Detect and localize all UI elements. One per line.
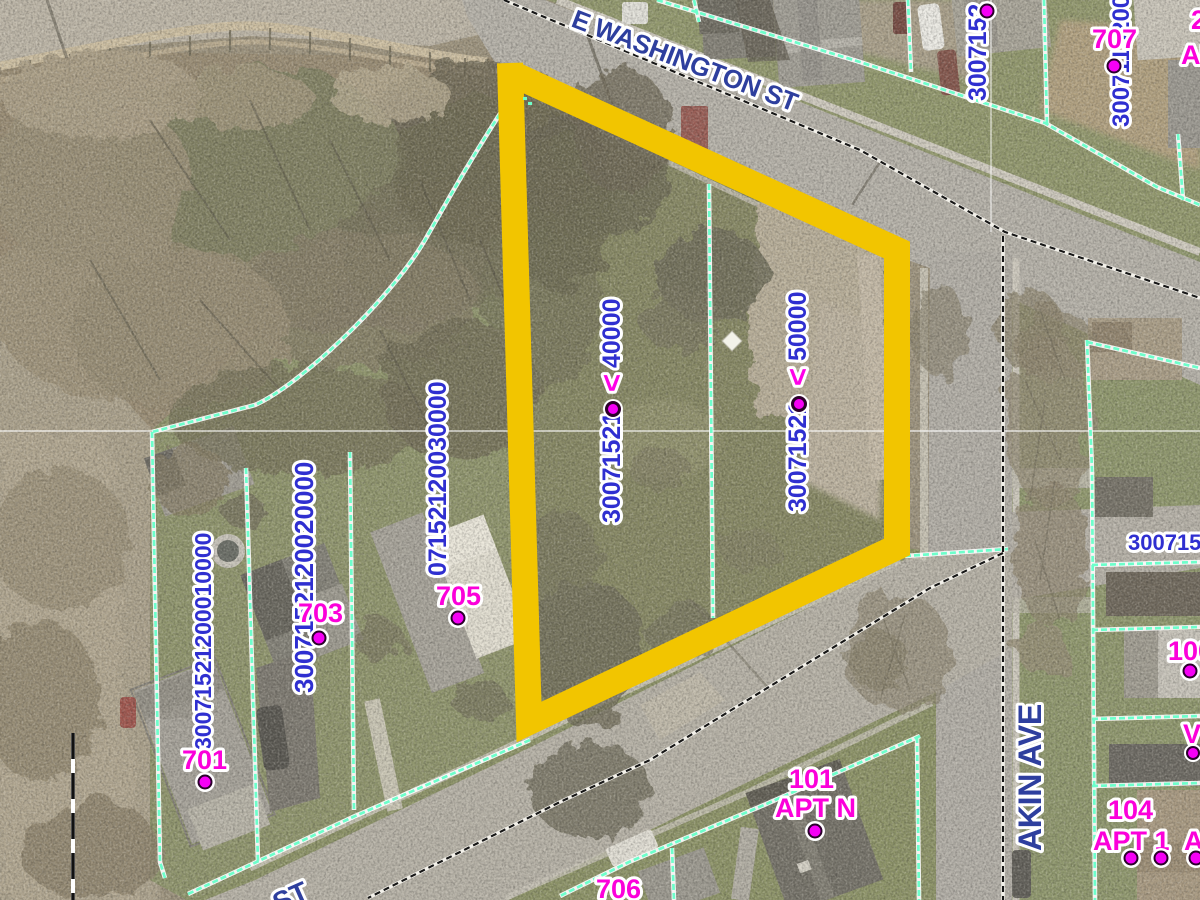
svg-text:101: 101 <box>789 764 834 794</box>
svg-text:706: 706 <box>596 874 641 900</box>
svg-text:<: < <box>780 368 815 386</box>
svg-text:50000: 50000 <box>784 291 812 361</box>
svg-text:40000: 40000 <box>598 298 626 368</box>
svg-text:AP: AP <box>1181 40 1200 70</box>
svg-text:300715: 300715 <box>1128 530 1200 555</box>
svg-text:30071521200010000: 30071521200010000 <box>190 533 216 750</box>
svg-text:703: 703 <box>298 598 343 628</box>
svg-text:2: 2 <box>1191 5 1200 35</box>
svg-text:707: 707 <box>1092 24 1137 54</box>
svg-text:705: 705 <box>436 581 481 611</box>
svg-text:<: < <box>594 374 629 392</box>
svg-text:100: 100 <box>1168 636 1200 666</box>
svg-text:30071521: 30071521 <box>598 412 626 523</box>
svg-text:104: 104 <box>1108 795 1153 825</box>
svg-text:3007152120020000: 3007152120020000 <box>289 462 319 693</box>
svg-text:07152120030000: 07152120030000 <box>424 381 452 576</box>
svg-text:701: 701 <box>182 745 227 775</box>
svg-text:APT N: APT N <box>775 793 856 823</box>
svg-text:AKIN AVE: AKIN AVE <box>1012 704 1048 851</box>
svg-text:30071521: 30071521 <box>784 401 812 512</box>
